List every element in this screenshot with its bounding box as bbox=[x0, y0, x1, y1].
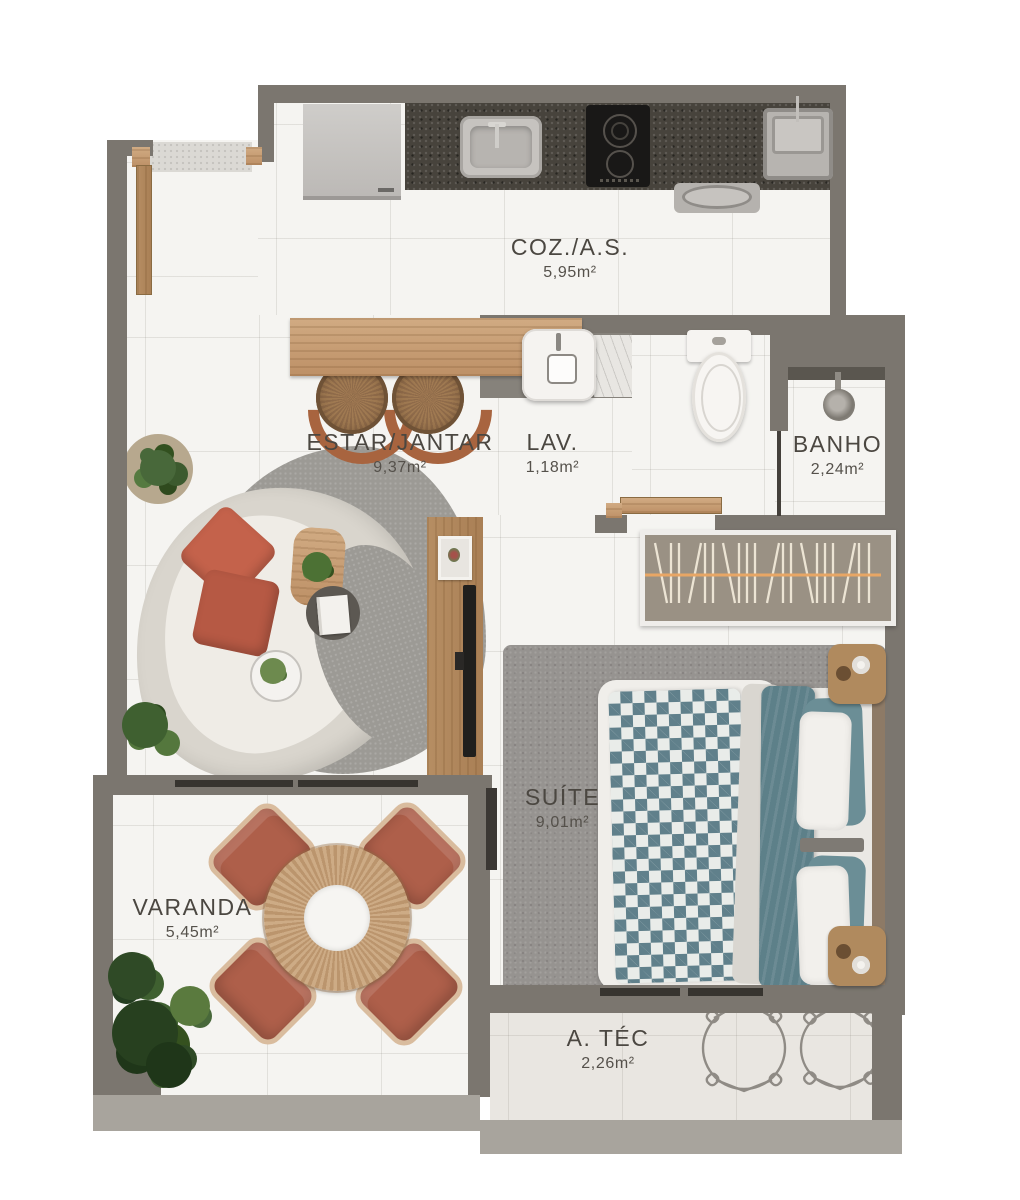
art-panel-lines-icon bbox=[645, 535, 881, 611]
entry-door-frame-left bbox=[132, 147, 150, 167]
room-label-atec: A. TÉC 2,26m² bbox=[528, 1026, 688, 1073]
room-area: 5,45m² bbox=[115, 924, 270, 942]
headboard-art-panel bbox=[640, 530, 896, 626]
tank-faucet-icon bbox=[796, 96, 799, 122]
kitchen-sink-basin bbox=[470, 126, 532, 168]
wall-right bbox=[885, 315, 905, 1015]
varanda-table-center bbox=[304, 885, 370, 951]
room-area: 1,18m² bbox=[500, 459, 605, 477]
varanda-plant-3 bbox=[170, 986, 210, 1026]
room-area: 9,37m² bbox=[295, 459, 505, 477]
toilet-flush-button bbox=[712, 337, 726, 345]
cooktop-burner-2 bbox=[606, 150, 634, 178]
varanda-plant-4 bbox=[146, 1042, 192, 1088]
suite-window-bar-2 bbox=[688, 988, 763, 996]
room-label-coz: COZ./A.S. 5,95m² bbox=[470, 235, 670, 282]
bed-duvet bbox=[608, 688, 748, 983]
room-name: BANHO bbox=[775, 432, 900, 458]
floor-plan: COZ./A.S. 5,95m² ESTAR/JANTAR 9,37m² LAV… bbox=[0, 0, 1020, 1200]
room-area: 5,95m² bbox=[470, 264, 670, 282]
room-label-banho: BANHO 2,24m² bbox=[775, 432, 900, 479]
nightstand-bottom-lamp bbox=[852, 956, 870, 974]
cooktop-controls bbox=[600, 179, 640, 182]
entry-threshold bbox=[150, 142, 252, 172]
glass-table-plant bbox=[260, 658, 286, 684]
toilet-seat bbox=[701, 364, 741, 432]
coffee-table-plant bbox=[302, 552, 332, 582]
room-area: 9,01m² bbox=[500, 814, 625, 832]
sofa-pillow-2 bbox=[191, 568, 281, 658]
room-area: 2,26m² bbox=[528, 1055, 688, 1073]
book bbox=[316, 595, 350, 636]
bed-tray bbox=[800, 838, 864, 852]
kitchen-faucet-spout bbox=[495, 124, 499, 148]
room-label-lav: LAV. 1,18m² bbox=[500, 430, 605, 477]
tv-bracket bbox=[455, 652, 464, 670]
room-name: LAV. bbox=[500, 430, 605, 456]
bed-pillow-white-1 bbox=[796, 711, 852, 831]
wall-top bbox=[258, 85, 846, 103]
fridge-handle bbox=[378, 188, 394, 192]
cooktop-burner-1 bbox=[603, 114, 637, 148]
bathroom-door-leaf bbox=[620, 497, 722, 514]
nightstand-bottom-vase bbox=[836, 944, 851, 959]
room-name: SUÍTE bbox=[500, 785, 625, 811]
living-left-plant bbox=[122, 702, 168, 748]
lav-basin-drain bbox=[547, 354, 577, 384]
picture-frame-art bbox=[448, 548, 460, 562]
suite-window-bar-1 bbox=[600, 988, 680, 996]
lav-faucet-icon bbox=[556, 333, 561, 351]
entry-door-leaf bbox=[136, 165, 152, 295]
corner-plant bbox=[140, 450, 176, 486]
sliding-door-track-2 bbox=[298, 780, 418, 787]
parapet-atec bbox=[480, 1120, 902, 1154]
washing-machine-door bbox=[682, 185, 752, 209]
room-name: VARANDA bbox=[115, 895, 270, 921]
nightstand-top-lamp bbox=[852, 656, 870, 674]
bathroom-door-frame bbox=[606, 503, 622, 518]
room-label-estar: ESTAR/JANTAR 9,37m² bbox=[295, 430, 505, 477]
wall-shower-partition bbox=[770, 367, 788, 431]
suite-door bbox=[486, 788, 497, 870]
room-label-suite: SUÍTE 9,01m² bbox=[500, 785, 625, 832]
room-name: COZ./A.S. bbox=[470, 235, 670, 261]
room-name: A. TÉC bbox=[528, 1026, 688, 1052]
sliding-door-track-1 bbox=[175, 780, 293, 787]
lav-marble-top bbox=[594, 335, 632, 397]
tv-screen bbox=[463, 585, 476, 757]
varanda-plant-1 bbox=[108, 952, 156, 1000]
entry-door-frame-right bbox=[246, 147, 262, 165]
nightstand-top-vase bbox=[836, 666, 851, 681]
room-name: ESTAR/JANTAR bbox=[295, 430, 505, 456]
shower-head-icon bbox=[823, 389, 855, 421]
room-area: 2,24m² bbox=[775, 461, 900, 479]
room-label-varanda: VARANDA 5,45m² bbox=[115, 895, 270, 942]
parapet-varanda bbox=[93, 1095, 480, 1131]
fridge bbox=[303, 104, 401, 200]
wall-left-upper bbox=[107, 140, 127, 780]
